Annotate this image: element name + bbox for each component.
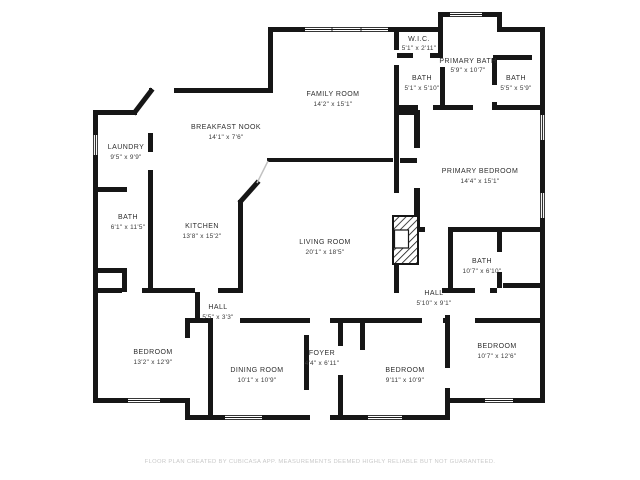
room-label-bath-top-left: BATH bbox=[412, 75, 432, 82]
room-label-dining-room: DINING ROOM bbox=[230, 367, 283, 374]
room-dims-bath-left: 6'1" x 11'5" bbox=[111, 224, 146, 231]
window bbox=[225, 415, 262, 420]
room-dims-primary-bath: 5'9" x 10'7" bbox=[450, 67, 485, 74]
room-dims-bedroom-bottom-right: 10'7" x 12'6" bbox=[478, 353, 517, 360]
room-dims-hall-right: 5'10" x 9'1" bbox=[416, 300, 451, 307]
room-dims-dining-room: 10'1" x 10'9" bbox=[238, 377, 277, 384]
room-label-bath-left: BATH bbox=[118, 214, 138, 221]
window bbox=[305, 27, 388, 32]
room-label-primary-bedroom: PRIMARY BEDROOM bbox=[442, 168, 519, 175]
room-label-family-room: FAMILY ROOM bbox=[307, 91, 360, 98]
room-dims-laundry: 9'5" x 9'9" bbox=[110, 154, 141, 161]
window bbox=[485, 398, 513, 403]
floor-plan-svg: LAUNDRY BATH KITCHEN BREAKFAST NOOK FAMI… bbox=[0, 0, 640, 480]
room-label-bedroom-bottom-left: BEDROOM bbox=[133, 349, 172, 356]
room-label-kitchen: KITCHEN bbox=[185, 223, 219, 230]
room-label-bath-top-right: BATH bbox=[506, 75, 526, 82]
room-dims-bath-top-right: 5'5" x 5'9" bbox=[500, 85, 531, 92]
footer-disclaimer: FLOOR PLAN CREATED BY CUBICASA APP. MEAS… bbox=[145, 459, 496, 465]
room-label-bath-right: BATH bbox=[472, 258, 492, 265]
room-label-hall-center: HALL bbox=[208, 304, 227, 311]
window bbox=[93, 135, 98, 155]
window bbox=[450, 12, 482, 17]
room-label-bedroom-bottom-center: BEDROOM bbox=[385, 367, 424, 374]
room-dims-living-room: 20'1" x 18'5" bbox=[306, 249, 345, 256]
room-dims-hall-center: 5'5" x 3'3" bbox=[202, 314, 233, 321]
room-label-living-room: LIVING ROOM bbox=[299, 239, 351, 246]
room-dims-bedroom-bottom-center: 9'11" x 10'9" bbox=[386, 377, 424, 384]
window bbox=[368, 415, 402, 420]
room-dims-breakfast-nook: 14'1" x 7'6" bbox=[208, 134, 243, 141]
room-dims-family-room: 14'2" x 15'1" bbox=[314, 101, 353, 108]
room-label-primary-bath: PRIMARY BATH bbox=[439, 58, 496, 65]
floor-plan-page: LAUNDRY BATH KITCHEN BREAKFAST NOOK FAMI… bbox=[0, 0, 640, 480]
room-dims-bedroom-bottom-left: 13'2" x 12'9" bbox=[134, 359, 173, 366]
room-label-wic: W.I.C. bbox=[408, 36, 430, 43]
room-label-foyer: FOYER bbox=[309, 350, 335, 357]
room-label-hall-right: HALL bbox=[424, 290, 443, 297]
room-dims-primary-bedroom: 14'4" x 15'1" bbox=[461, 178, 500, 185]
room-dims-bath-right: 10'7" x 6'10" bbox=[463, 268, 502, 275]
room-label-bedroom-bottom-right: BEDROOM bbox=[477, 343, 516, 350]
room-label-breakfast-nook: BREAKFAST NOOK bbox=[191, 124, 261, 131]
room-dims-foyer: 4'4" x 6'11" bbox=[305, 360, 340, 367]
room-dims-wic: 5'1" x 2'11" bbox=[402, 45, 437, 52]
fireplace bbox=[393, 216, 418, 264]
window bbox=[540, 115, 545, 140]
window bbox=[540, 193, 545, 218]
room-dims-bath-top-left: 5'1" x 5'10" bbox=[404, 85, 439, 92]
window bbox=[128, 398, 160, 403]
room-dims-kitchen: 13'8" x 15'2" bbox=[183, 233, 222, 240]
room-label-laundry: LAUNDRY bbox=[108, 144, 144, 151]
